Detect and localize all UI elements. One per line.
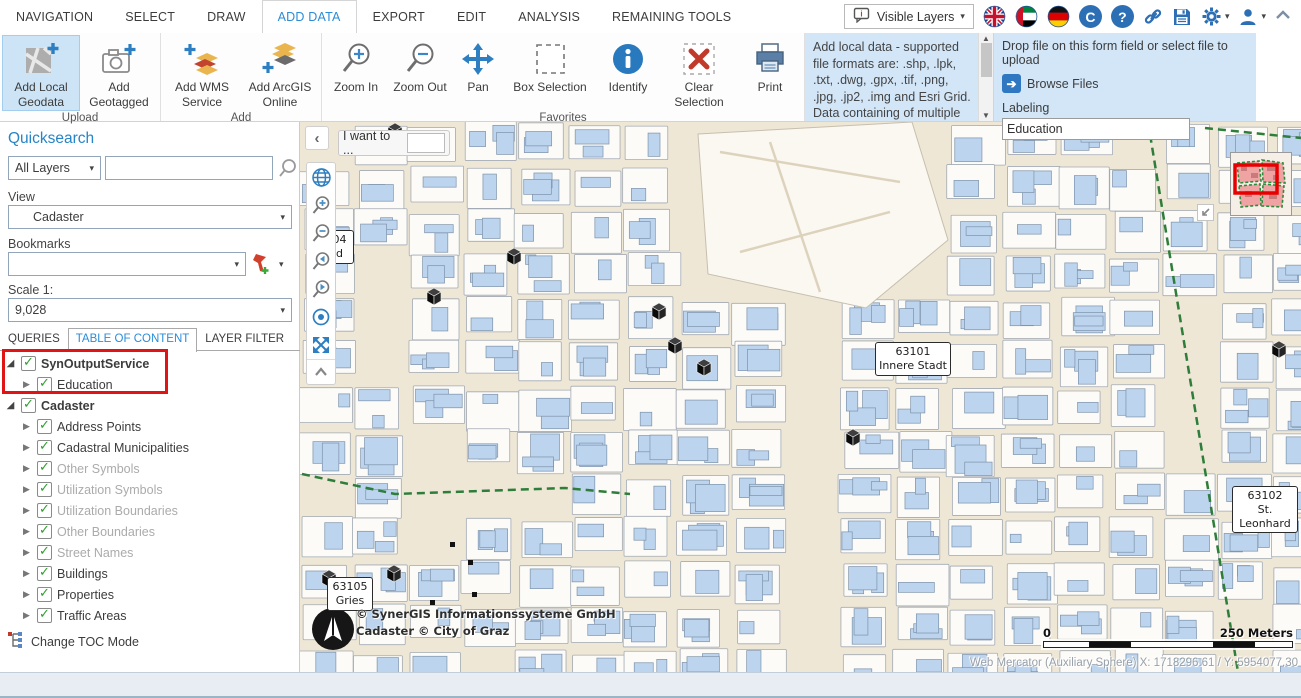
labeling-label: Labeling [1002, 101, 1248, 115]
identify-button[interactable]: Identify [596, 35, 660, 111]
tab-layer-filter[interactable]: LAYER FILTER [197, 328, 292, 350]
tree-item-other-boundaries[interactable]: ▶Other Boundaries [0, 521, 300, 542]
tab-queries[interactable]: QUERIES [0, 328, 68, 350]
tree-item-education[interactable]: ▶Education [0, 374, 300, 395]
status-bar [0, 672, 1301, 698]
legend-bubble-icon: i [853, 7, 871, 26]
scroll-up-icon[interactable]: ▲ [982, 34, 990, 43]
scale-bar: 0 250 Meters [1043, 626, 1293, 648]
scroll-down-icon[interactable]: ▼ [982, 111, 990, 120]
settings-dropdown[interactable]: ▾ [1201, 6, 1230, 27]
upload-info-text: Add local data - supported file formats … [805, 33, 978, 121]
checkbox[interactable] [37, 482, 52, 497]
ribbon-spacer [1256, 33, 1301, 121]
checkbox[interactable] [37, 608, 52, 623]
layer-tree: ◢SynOutputService ▶Education ◢Cadaster ▶… [0, 353, 300, 626]
scroll-thumb[interactable] [981, 43, 992, 77]
add-geotagged-icon [100, 40, 138, 78]
copyright-icon[interactable]: C [1079, 5, 1102, 28]
i-want-to-input[interactable] [407, 133, 445, 153]
browse-files-button[interactable]: ➔ Browse Files [1002, 74, 1248, 93]
link-icon[interactable] [1143, 7, 1163, 27]
tree-item-utilization-symbols[interactable]: ▶Utilization Symbols [0, 479, 300, 500]
menu-bar: NAVIGATION SELECT DRAW ADD DATA EXPORT E… [0, 0, 1301, 33]
tree-item-other-symbols[interactable]: ▶Other Symbols [0, 458, 300, 479]
flag-germany-icon[interactable] [1047, 5, 1070, 28]
info-scrollbar[interactable]: ▲ ▼ [978, 33, 993, 121]
expander-icon[interactable]: ▶ [21, 443, 32, 453]
tree-item-cadastral-municipalities[interactable]: ▶Cadastral Municipalities [0, 437, 300, 458]
ribbon-group-favorites: Zoom In Zoom Out Pan [322, 33, 805, 121]
expander-icon[interactable]: ▶ [21, 380, 32, 390]
zoom-in-icon [339, 40, 373, 78]
search-layer-select[interactable]: All Layers ▾ [8, 156, 101, 180]
collapse-ribbon-icon[interactable] [1275, 8, 1291, 26]
tool-label: Zoom In [334, 80, 378, 95]
save-icon[interactable] [1172, 7, 1192, 27]
menu-edit[interactable]: EDIT [441, 0, 502, 33]
collapse-tools-icon[interactable] [307, 359, 335, 384]
bookmark-menu-icon[interactable]: ▾ [279, 259, 284, 270]
checkbox[interactable] [21, 398, 36, 413]
search-layer-value: All Layers [15, 161, 89, 175]
menu-select[interactable]: SELECT [109, 0, 191, 33]
district-label-st-leonhard: 63102St. Leonhard [1232, 486, 1298, 533]
quicksearch-input[interactable] [105, 156, 273, 180]
ribbon-toolbar: Add Local Geodata Add Geotagged Upload A… [0, 33, 1301, 122]
tree-item-utilization-boundaries[interactable]: ▶Utilization Boundaries [0, 500, 300, 521]
change-toc-mode-label: Change TOC Mode [31, 635, 139, 649]
file-dropzone[interactable]: Drop file on this form field or select f… [993, 33, 1256, 121]
print-button[interactable]: Print [738, 35, 802, 111]
tree-label: Address Points [57, 420, 141, 434]
expander-icon[interactable]: ◢ [5, 400, 16, 411]
education-symbol [668, 337, 682, 354]
next-extent-icon[interactable] [307, 275, 335, 303]
checkbox[interactable] [37, 587, 52, 602]
view-value: Cadaster [15, 210, 280, 224]
map-canvas[interactable] [300, 122, 1301, 672]
tree-label: Utilization Boundaries [57, 504, 178, 518]
add-arcgis-online-icon [260, 40, 300, 78]
tool-label: Add Local Geodata [3, 80, 79, 110]
collapse-sidebar-button[interactable]: ‹ [305, 126, 329, 150]
user-dropdown[interactable]: ▾ [1238, 7, 1266, 27]
scale-value: 9,028 [15, 303, 280, 317]
flag-uae-icon[interactable] [1015, 5, 1038, 28]
checkbox[interactable] [37, 440, 52, 455]
tree-label: Other Symbols [57, 462, 140, 476]
visible-layers-label: Visible Layers [877, 10, 955, 24]
zoom-out-icon [403, 40, 437, 78]
chevron-down-icon: ▾ [234, 259, 239, 270]
chevron-down-icon: ▾ [1261, 11, 1266, 22]
globe-icon[interactable] [307, 163, 335, 191]
labeling-input[interactable] [1002, 118, 1190, 140]
tree-item-street-names[interactable]: ▶Street Names [0, 542, 300, 563]
scale-select[interactable]: 9,028 ▾ [8, 298, 292, 322]
view-label: View [8, 190, 35, 204]
add-wms-service-button[interactable]: Add WMS Service [163, 35, 241, 111]
upload-info-panel: Add local data - supported file formats … [805, 33, 993, 121]
tree-label: Cadaster [41, 399, 95, 413]
add-local-geodata-icon [22, 40, 60, 78]
map-viewport[interactable]: 104nd ‹ I want to ... [300, 122, 1301, 672]
tree-item-buildings[interactable]: ▶Buildings [0, 563, 300, 584]
overview-toggle-button[interactable] [1197, 204, 1214, 221]
scalebar-segments [1043, 641, 1293, 648]
checkbox[interactable] [37, 461, 52, 476]
gear-icon [1201, 6, 1222, 27]
chevron-down-icon: ▾ [89, 163, 94, 174]
scale-label: Scale 1: [8, 283, 53, 297]
tree-label: Street Names [57, 546, 133, 560]
clear-selection-icon [681, 40, 717, 78]
pan-button[interactable]: Pan [452, 35, 504, 111]
education-symbol [427, 288, 441, 305]
checkbox[interactable] [37, 545, 52, 560]
north-arrow [312, 608, 354, 650]
tab-table-of-content[interactable]: TABLE OF CONTENT [68, 328, 198, 352]
education-symbol [697, 359, 711, 376]
checkbox[interactable] [37, 524, 52, 539]
scalebar-end: 250 Meters [1220, 626, 1293, 640]
tool-label: Identify [609, 80, 648, 95]
menu-export[interactable]: EXPORT [357, 0, 441, 33]
coordinate-readout: Web Mercator (Auxiliary Sphere) X: 17182… [970, 657, 1298, 669]
menu-draw[interactable]: DRAW [191, 0, 262, 33]
tree-item-properties[interactable]: ▶Properties [0, 584, 300, 605]
tree-item-traffic-areas[interactable]: ▶Traffic Areas [0, 605, 300, 626]
tree-item-synoutputservice[interactable]: ◢SynOutputService [0, 353, 300, 374]
ribbon-group-add: Add WMS Service Add ArcGIS Online Add [161, 33, 322, 121]
zoom-out-button[interactable]: Zoom Out [388, 35, 452, 111]
zoom-in-button[interactable]: Zoom In [324, 35, 388, 111]
box-selection-icon [533, 40, 567, 78]
tree-item-address-points[interactable]: ▶Address Points [0, 416, 300, 437]
ribbon-group-label: Add [163, 111, 319, 127]
overview-map[interactable] [1230, 152, 1292, 216]
expander-icon[interactable]: ◢ [5, 358, 16, 369]
flag-uk-icon[interactable] [983, 5, 1006, 28]
map-zoom-in-icon[interactable] [307, 191, 335, 219]
print-icon [752, 40, 788, 78]
toc-mode-icon [7, 631, 25, 652]
menu-analysis[interactable]: ANALYSIS [502, 0, 596, 33]
bookmarks-select[interactable]: ▾ [8, 252, 246, 276]
add-arcgis-online-button[interactable]: Add ArcGIS Online [241, 35, 319, 111]
add-local-geodata-button[interactable]: Add Local Geodata [2, 35, 80, 111]
district-label-innere-stadt: 63101Innere Stadt [875, 342, 951, 376]
browse-files-label: Browse Files [1027, 77, 1099, 91]
change-toc-mode-button[interactable]: Change TOC Mode [7, 631, 139, 652]
expander-icon[interactable]: ▶ [21, 464, 32, 474]
tree-label: Other Boundaries [57, 525, 155, 539]
ribbon-group-label: Favorites [324, 111, 802, 127]
tool-label: Add Geotagged [81, 80, 157, 110]
add-wms-service-icon [182, 40, 222, 78]
default-extent-icon[interactable] [307, 303, 335, 331]
tree-label: Education [57, 378, 113, 392]
tree-label: Cadastral Municipalities [57, 441, 189, 455]
tree-item-cadaster[interactable]: ◢Cadaster [0, 395, 300, 416]
menu-add-data[interactable]: ADD DATA [262, 0, 357, 33]
checkbox[interactable] [37, 377, 52, 392]
scalebar-start: 0 [1043, 626, 1051, 640]
ribbon-group-upload: Add Local Geodata Add Geotagged Upload [0, 33, 161, 121]
menu-items: NAVIGATION SELECT DRAW ADD DATA EXPORT E… [0, 0, 747, 33]
education-symbol [507, 248, 521, 265]
menu-remaining-tools[interactable]: REMAINING TOOLS [596, 0, 747, 33]
map-tool-column [306, 162, 336, 385]
expander-icon[interactable]: ▶ [21, 611, 32, 621]
tree-label: Buildings [57, 567, 108, 581]
checkbox[interactable] [21, 356, 36, 371]
checkbox[interactable] [37, 419, 52, 434]
topbar-right: i Visible Layers ▾ C ? [844, 4, 1301, 29]
education-symbol [1272, 341, 1286, 358]
tool-label: Add ArcGIS Online [242, 80, 318, 110]
help-icon[interactable]: ? [1111, 5, 1134, 28]
menu-navigation[interactable]: NAVIGATION [0, 0, 109, 33]
checkbox[interactable] [37, 503, 52, 518]
education-symbol [652, 303, 666, 320]
tool-label: Print [758, 80, 783, 95]
quicksearch-title: Quicksearch [8, 130, 94, 148]
chevron-down-icon: ▾ [1225, 11, 1230, 22]
tool-label: Clear Selection [661, 80, 737, 110]
tool-label: Zoom Out [393, 80, 446, 95]
i-want-to-label: I want to ... [343, 129, 402, 157]
browse-arrow-icon: ➔ [1002, 74, 1021, 93]
ribbon-group-label: Upload [2, 111, 158, 127]
map-zoom-out-icon[interactable] [307, 219, 335, 247]
app-root: NAVIGATION SELECT DRAW ADD DATA EXPORT E… [0, 0, 1301, 698]
add-geotagged-button[interactable]: Add Geotagged [80, 35, 158, 111]
tree-label: SynOutputService [41, 357, 149, 371]
svg-text:i: i [860, 10, 862, 19]
chevron-down-icon: ▾ [280, 305, 285, 316]
map-attribution: © SynerGIS Informationssysteme GmbH Cada… [356, 606, 616, 641]
full-extent-icon[interactable] [307, 331, 335, 359]
user-icon [1238, 7, 1258, 27]
previous-extent-icon[interactable] [307, 247, 335, 275]
visible-layers-dropdown[interactable]: i Visible Layers ▾ [844, 4, 974, 29]
tool-label: Pan [467, 80, 488, 95]
expander-icon[interactable]: ▶ [21, 527, 32, 537]
identify-icon [610, 40, 646, 78]
bookmarks-label: Bookmarks [8, 237, 71, 251]
expander-icon[interactable]: ▶ [21, 506, 32, 516]
dropzone-instruction: Drop file on this form field or select f… [1002, 39, 1248, 67]
tree-label: Properties [57, 588, 114, 602]
education-symbol [387, 565, 401, 582]
education-symbol [846, 429, 860, 446]
tree-label: Traffic Areas [57, 609, 126, 623]
expander-icon[interactable]: ▶ [21, 569, 32, 579]
expander-icon[interactable]: ▶ [21, 422, 32, 432]
chevron-down-icon: ▾ [960, 11, 965, 22]
toc-tabs: QUERIES TABLE OF CONTENT LAYER FILTER [0, 328, 300, 351]
view-select[interactable]: Cadaster ▾ [8, 205, 292, 229]
search-icon[interactable] [278, 158, 298, 181]
box-selection-button[interactable]: Box Selection [504, 35, 596, 111]
left-panel: Quicksearch All Layers ▾ View Cadaster ▾… [0, 122, 300, 672]
expander-icon[interactable]: ▶ [21, 485, 32, 495]
expander-icon[interactable]: ▶ [21, 590, 32, 600]
tool-label: Add WMS Service [164, 80, 240, 110]
clear-selection-button[interactable]: Clear Selection [660, 35, 738, 111]
add-bookmark-icon[interactable] [251, 252, 273, 279]
expander-icon[interactable]: ▶ [21, 548, 32, 558]
i-want-to-box[interactable]: I want to ... [338, 130, 450, 156]
tree-label: Utilization Symbols [57, 483, 163, 497]
pan-icon [460, 40, 496, 78]
tool-label: Box Selection [513, 80, 586, 95]
chevron-down-icon: ▾ [280, 212, 285, 223]
checkbox[interactable] [37, 566, 52, 581]
